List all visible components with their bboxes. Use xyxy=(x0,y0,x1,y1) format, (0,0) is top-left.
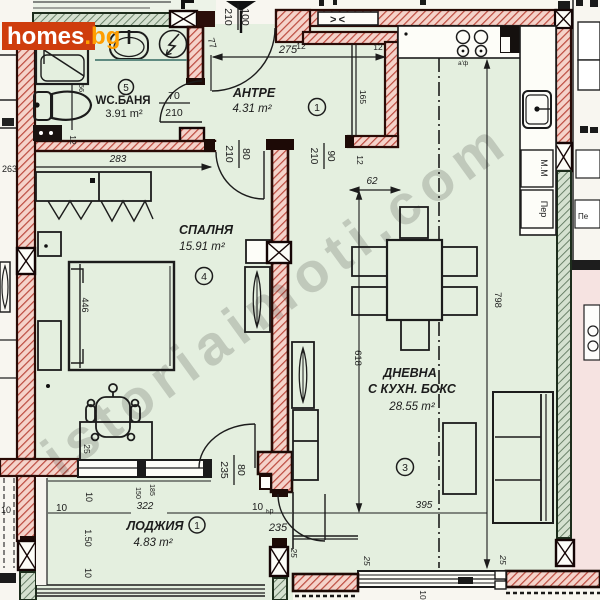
svg-text:70: 70 xyxy=(168,90,180,102)
svg-text:Пер: Пер xyxy=(539,201,549,217)
svg-text:618: 618 xyxy=(352,350,363,366)
svg-text:12: 12 xyxy=(68,135,78,145)
svg-text:185: 185 xyxy=(148,484,155,496)
svg-text:235: 235 xyxy=(268,522,288,534)
svg-text:10: 10 xyxy=(56,503,68,514)
svg-text:homes.bg: homes.bg xyxy=(7,23,120,50)
svg-text:56: 56 xyxy=(77,84,86,92)
svg-text:165: 165 xyxy=(358,90,368,104)
svg-text:10: 10 xyxy=(252,502,264,513)
svg-text:446: 446 xyxy=(80,297,90,312)
svg-text:ЛОДЖИЯ: ЛОДЖИЯ xyxy=(126,519,185,533)
svg-text:150: 150 xyxy=(134,487,141,499)
svg-text:ьр: ьр xyxy=(266,508,274,515)
svg-text:210: 210 xyxy=(308,148,319,165)
svg-text:235: 235 xyxy=(218,461,230,479)
svg-text:25: 25 xyxy=(289,547,299,558)
svg-text:210: 210 xyxy=(165,107,183,119)
svg-text:3: 3 xyxy=(402,462,408,474)
svg-text:WC.БАНЯ: WC.БАНЯ xyxy=(95,95,150,107)
svg-text:210: 210 xyxy=(222,8,234,26)
svg-text:100: 100 xyxy=(239,8,251,26)
svg-text:10: 10 xyxy=(1,505,11,515)
svg-text:М.М: М.М xyxy=(539,159,549,177)
svg-text:80: 80 xyxy=(235,464,247,476)
svg-text:Пе: Пе xyxy=(578,212,589,221)
svg-text:1.50: 1.50 xyxy=(83,529,93,547)
svg-text:С КУХН. БОКС: С КУХН. БОКС xyxy=(368,382,457,396)
svg-text:90: 90 xyxy=(325,150,336,162)
svg-text:а'ф: а'ф xyxy=(458,60,469,67)
svg-text:1: 1 xyxy=(314,102,320,114)
svg-text:5: 5 xyxy=(123,83,129,94)
svg-text:12: 12 xyxy=(355,155,365,165)
svg-text:12: 12 xyxy=(296,41,306,51)
svg-text:395: 395 xyxy=(416,500,433,511)
svg-text:15.91 m²: 15.91 m² xyxy=(179,241,226,253)
svg-text:25: 25 xyxy=(498,554,508,565)
svg-text:283: 283 xyxy=(109,154,127,165)
svg-text:80: 80 xyxy=(240,148,252,160)
svg-text:275: 275 xyxy=(278,44,298,56)
svg-text:12: 12 xyxy=(373,42,383,52)
svg-text:322: 322 xyxy=(137,501,154,512)
svg-text:3.91 m²: 3.91 m² xyxy=(105,108,143,120)
svg-text:10: 10 xyxy=(418,590,428,600)
svg-text:1: 1 xyxy=(194,521,200,532)
svg-text:210: 210 xyxy=(223,145,235,163)
svg-text:798: 798 xyxy=(492,292,503,308)
svg-text:263: 263 xyxy=(2,164,17,174)
svg-text:СПАЛНЯ: СПАЛНЯ xyxy=(179,223,234,237)
svg-text:4.83 m²: 4.83 m² xyxy=(134,537,174,549)
svg-text:> <: > < xyxy=(330,14,345,26)
svg-text:4.31 m²: 4.31 m² xyxy=(233,103,273,115)
svg-text:28.55 m²: 28.55 m² xyxy=(388,401,436,413)
svg-text:10: 10 xyxy=(83,568,93,578)
svg-text:10: 10 xyxy=(84,492,94,502)
svg-text:25: 25 xyxy=(362,555,372,566)
svg-text:ДНЕВНА: ДНЕВНА xyxy=(382,366,436,380)
svg-text:АНТРЕ: АНТРЕ xyxy=(232,86,276,100)
svg-text:4: 4 xyxy=(201,271,207,283)
